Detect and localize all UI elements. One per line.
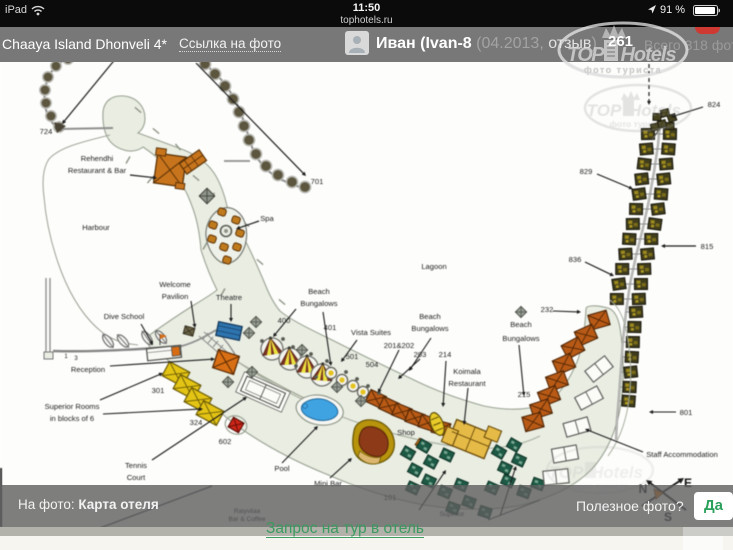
svg-text:фото туриста: фото туриста (584, 65, 662, 75)
svg-text:TOP: TOP (567, 44, 605, 66)
